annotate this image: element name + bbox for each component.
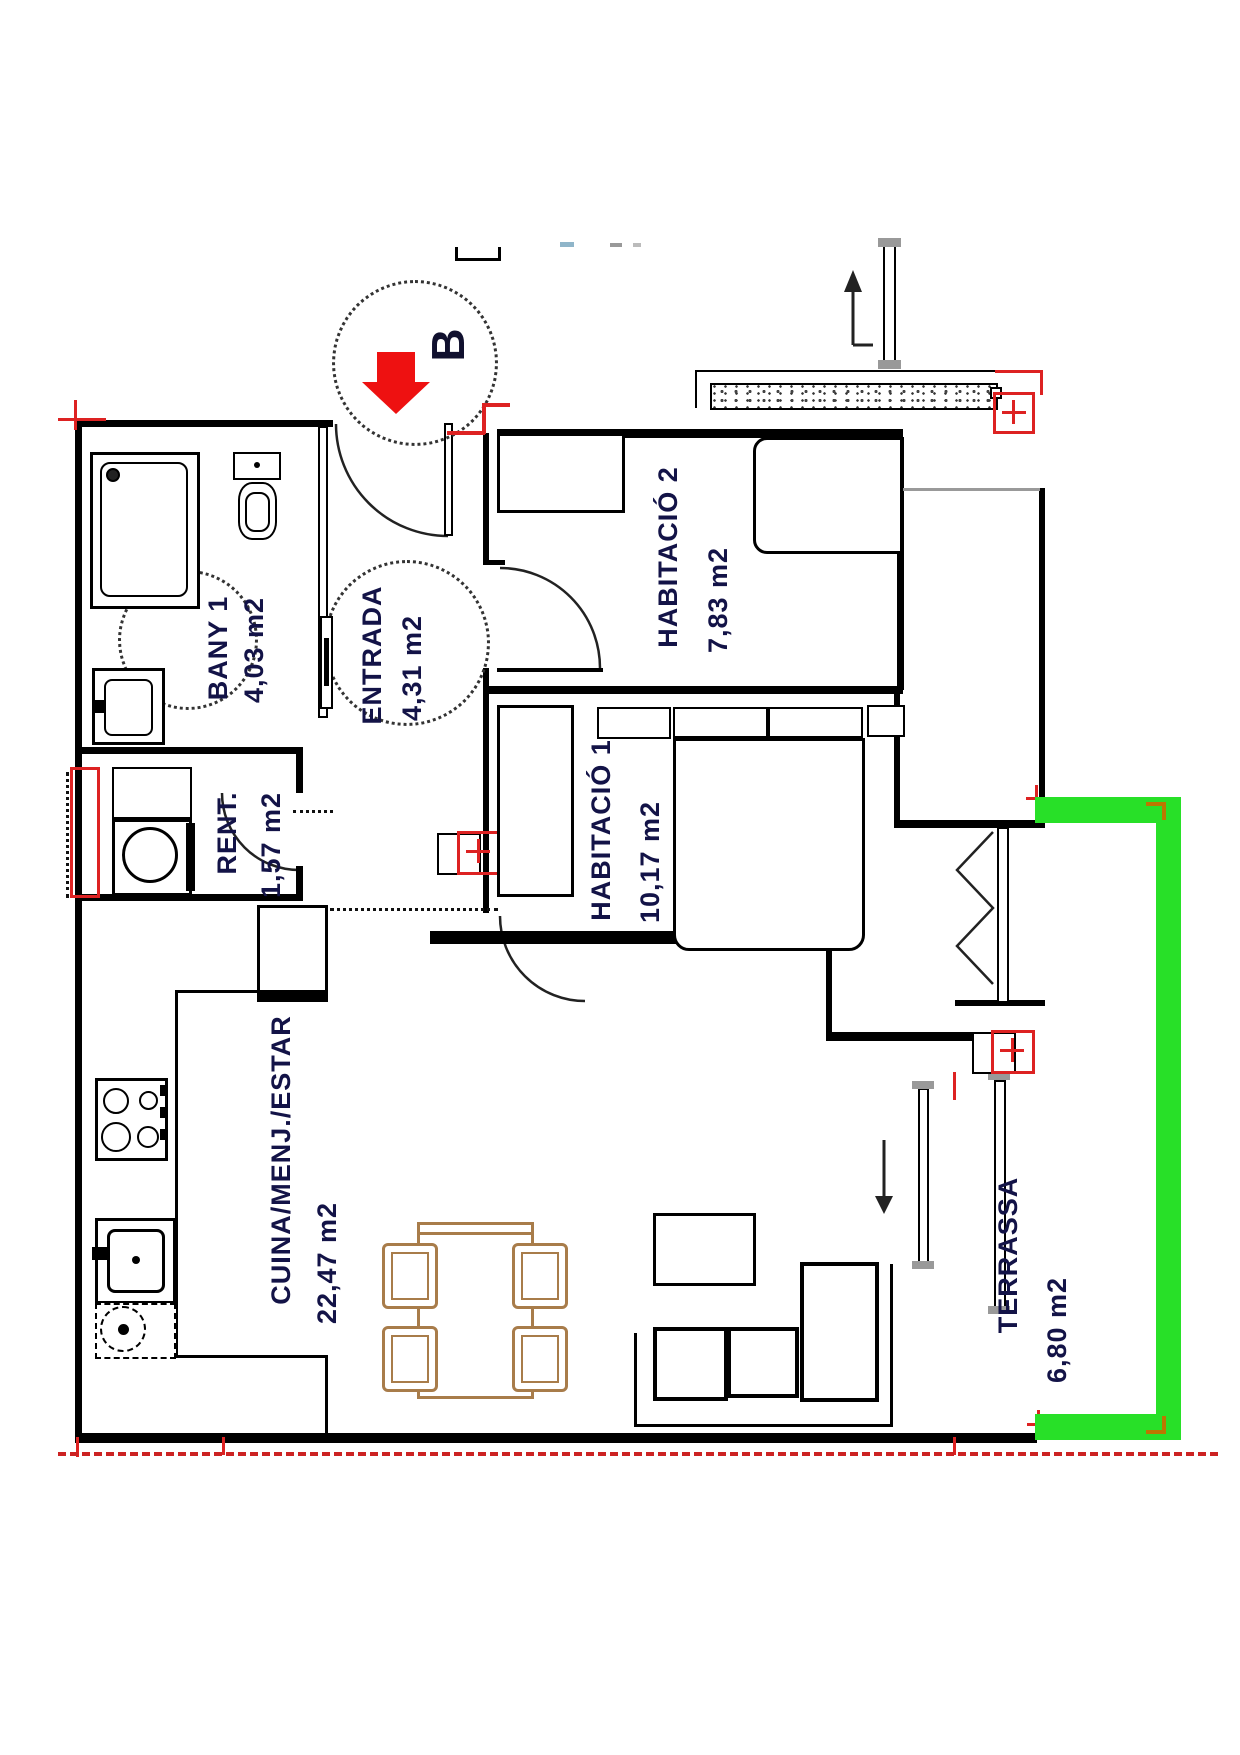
top-dash-1 [560,242,574,247]
bathroom-door-handle [324,638,329,686]
room-label-rent: RENT. [211,683,243,983]
red-entry-step-b [482,403,486,434]
room-area-rent: 1,57 m2 [255,695,287,995]
hob-grill-1 [160,1085,168,1096]
wardrobe-bed1 [497,705,574,897]
dotted-separator-laundry [293,810,333,813]
red-corner-tl-v [74,400,77,430]
dining-table-edge-line [417,1232,534,1235]
ledge-line [903,488,1040,491]
red-line-tr-h [995,370,1043,373]
top-dash-2 [610,243,622,247]
counter-edge-bottom [175,1355,328,1358]
sofa-outline-bottom [634,1424,893,1427]
top-column [883,243,896,365]
down-arrow-icon [875,1196,893,1214]
wall-living-jog [826,944,832,1039]
sofa-outline-left [634,1333,637,1427]
chair-seat [521,1335,559,1383]
bed-double [673,738,865,951]
wall-laundry-right-lower [296,866,303,894]
room-area-habitacio2: 7,83 m2 [702,450,734,750]
wall-left [75,420,82,1443]
hob-grill-2 [160,1107,168,1118]
wall-terrace-door-top [894,820,1044,828]
bathtub-drain [106,468,120,482]
marker-arrow-stem [377,352,415,383]
bed-double-head-right [768,707,863,738]
chair-seat [521,1252,559,1300]
chair-top-right [512,1243,568,1309]
floor-plan: B [0,0,1240,1755]
chair-bottom-right [512,1326,568,1392]
room-area-entrada: 4,31 m2 [396,518,428,818]
nightstand [867,705,905,737]
folding-door-zigzag [957,832,993,984]
hob-burner-2 [139,1091,158,1110]
room-area-habitacio1: 10,17 m2 [634,712,666,1012]
red-plus-2-v [477,839,480,863]
hob-burner-4 [137,1126,159,1148]
kitchen-sink-drain [132,1256,140,1264]
wall-laundry-right-upper [296,747,303,793]
chair-seat [391,1252,429,1300]
room-label-entrada: ENTRADA [356,505,388,805]
red-entry-step-a [447,431,485,435]
laundry-shelf [112,767,192,819]
window-sill-hatched [710,383,998,410]
wall-bed2-door-base [497,668,603,672]
wall-living-right-stub [826,1032,996,1041]
terrace-corner-tick-4 [1162,1416,1166,1434]
dotted-line-outside-left [66,772,69,898]
room-label-terrassa: TERRASSA [992,1105,1024,1405]
bathroom-sink-basin [104,679,153,736]
room-label-habitacio1: HABITACIÓ 1 [585,680,617,980]
bathtub-inner [100,462,188,597]
sofa-seat-2 [727,1327,799,1398]
hob-grill-3 [160,1129,168,1140]
sofa-seat-1 [653,1327,728,1401]
wardrobe-bed2 [497,433,625,513]
wall-hall-bed1 [483,668,489,913]
top-column-cap-top [878,238,901,247]
block-marker-letter: B [423,315,473,375]
room-label-habitacio2: HABITACIÓ 2 [652,407,684,707]
bedroom1-door-arc [500,916,585,1001]
top-dash-3 [633,243,641,247]
boiler-center-dot [118,1324,129,1335]
roof-line-connector [695,370,697,408]
terrace-corner-tick-2 [1162,802,1166,820]
toilet-button [254,462,260,468]
red-entry-step-c [483,403,510,407]
up-arrow-icon [844,270,862,292]
sofa-chaise [800,1262,879,1402]
chair-bottom-left [382,1326,438,1392]
top-bracket [455,247,501,261]
chair-seat [391,1335,429,1383]
red-plus-1-v [1012,400,1015,424]
hob-burner-1 [103,1088,129,1114]
tv-table [653,1213,756,1286]
marker-arrow-icon [362,382,430,414]
top-column-cap-bottom [878,360,901,369]
dotted-separator-hall-living [330,908,498,911]
glass-door-cap-bottom [912,1261,934,1269]
room-label-cuina: CUINA/MENJ./ESTAR [265,1010,297,1310]
living-terrace-glass-door [918,1088,929,1263]
wall-top-bath [75,420,333,427]
marker-b-circle [332,280,498,446]
red-corner-tl-h [58,418,106,421]
kitchen-sink-tap [92,1247,107,1260]
red-plus-3-v [1011,1038,1014,1062]
room-area-cuina: 22,47 m2 [311,1113,343,1413]
room-area-terrassa: 6,80 m2 [1041,1180,1073,1480]
bedroom2-door-arc [500,568,600,668]
door-jamb-bed2 [483,560,505,565]
wall-outer-right [1039,488,1045,828]
bed-single [753,437,903,554]
washing-machine-panel [186,823,195,891]
wall-bed-divider [485,686,903,694]
red-window-laundry [70,767,100,898]
wall-hall-bed2 [483,433,489,563]
glass-door-cap-top [912,1081,934,1089]
sofa-outline-right [890,1264,893,1427]
terrace-green-right [1156,797,1181,1440]
wall-bottom [75,1433,1037,1443]
counter-edge-top [175,990,259,993]
red-line-tr-v [1040,370,1043,395]
roof-line [697,370,1013,372]
chair-top-left [382,1243,438,1309]
bathroom-sink-tap [92,700,105,713]
bed1-terrace-folding-door [997,827,1009,1003]
red-tick-door [953,1072,956,1100]
washing-machine-drum [122,827,178,883]
hob-burner-3 [101,1122,131,1152]
